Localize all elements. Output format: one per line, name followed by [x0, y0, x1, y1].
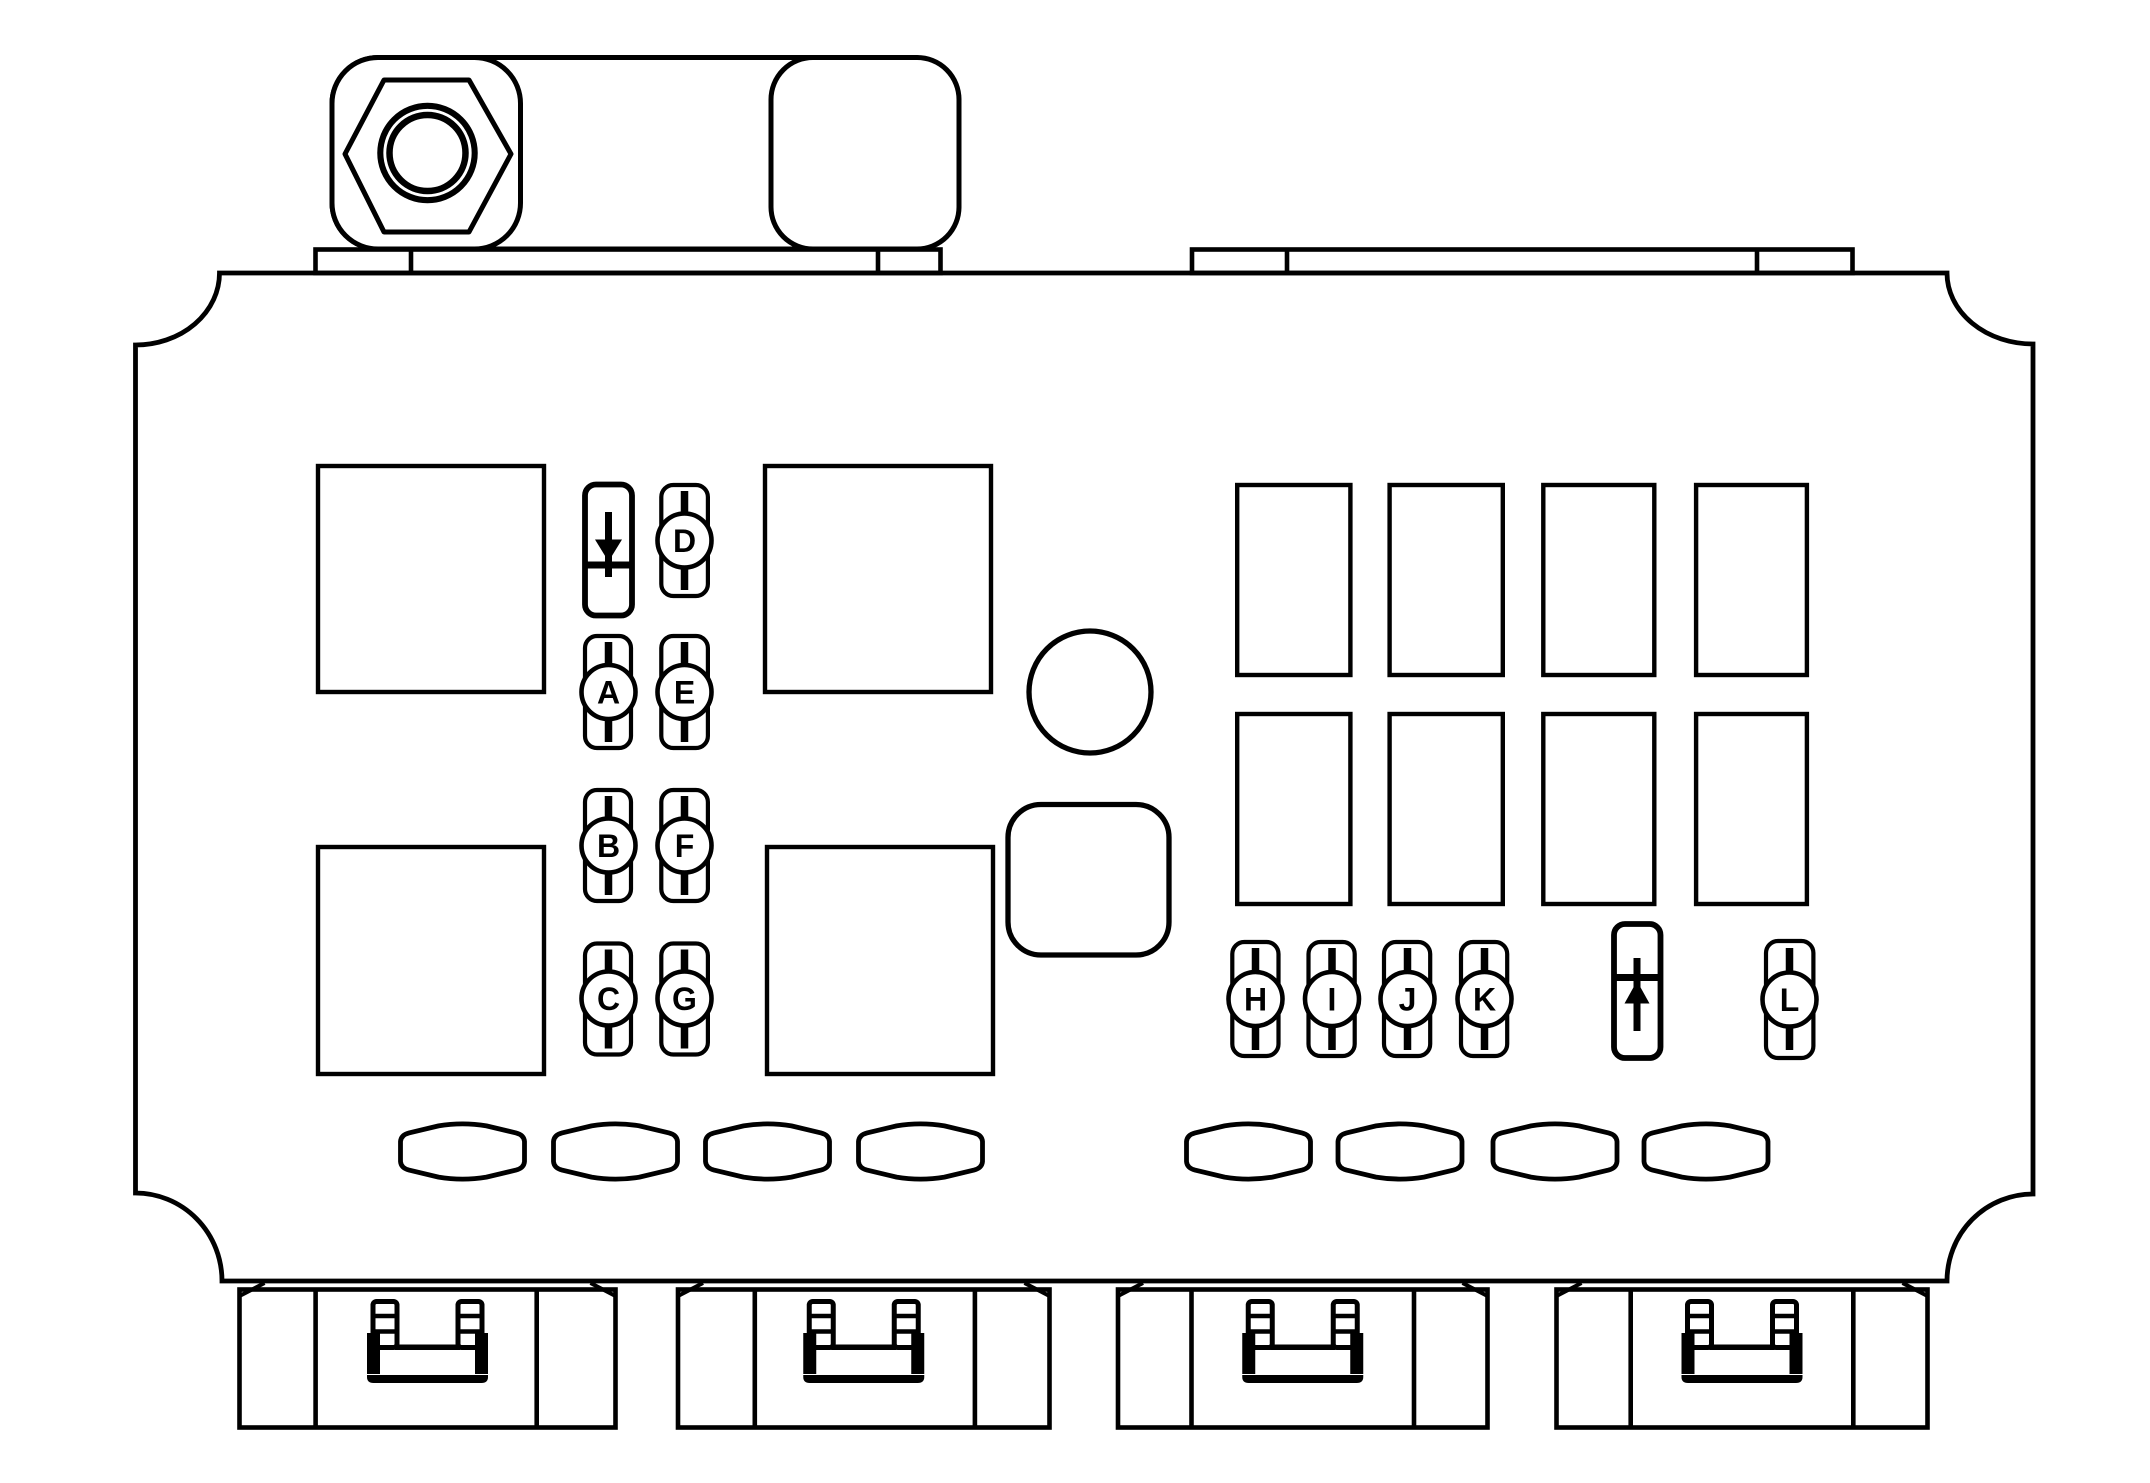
svg-text:D: D [673, 523, 696, 559]
svg-text:G: G [672, 981, 697, 1017]
svg-text:F: F [675, 828, 695, 864]
svg-text:H: H [1244, 982, 1267, 1018]
svg-text:J: J [1399, 982, 1417, 1018]
svg-text:I: I [1328, 982, 1337, 1018]
svg-text:K: K [1473, 982, 1496, 1018]
svg-text:E: E [674, 675, 695, 711]
svg-text:B: B [597, 828, 620, 864]
svg-text:A: A [597, 675, 620, 711]
svg-text:C: C [597, 981, 620, 1017]
svg-text:L: L [1780, 982, 1800, 1018]
